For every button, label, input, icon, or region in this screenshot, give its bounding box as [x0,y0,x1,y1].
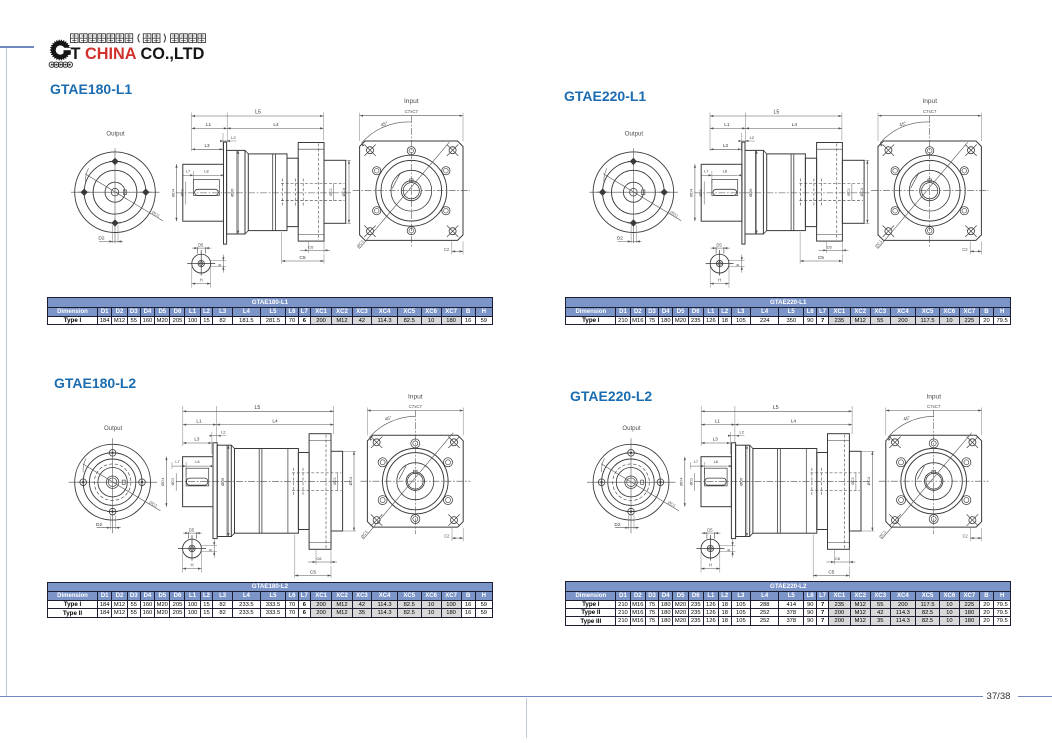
svg-text:B: B [726,549,731,552]
svg-text:C2: C2 [444,534,450,539]
svg-text:ØD3: ØD3 [171,478,175,485]
svg-text:D2: D2 [617,236,623,242]
svg-text:L6: L6 [714,460,718,464]
svg-text:C6: C6 [827,244,832,249]
svg-text:H: H [709,563,712,568]
svg-text:H: H [718,278,721,283]
svg-text:B: B [208,549,213,552]
svg-text:L7: L7 [704,170,708,174]
svg-text:C6: C6 [835,556,840,561]
svg-text:L2: L2 [750,135,755,140]
svg-text:Input: Input [922,98,937,105]
svg-text:L7: L7 [175,460,179,464]
svg-text:D5: D5 [198,242,204,247]
svg-text:L3: L3 [713,437,719,442]
svg-text:Input: Input [408,394,423,401]
svg-text:D2: D2 [614,522,620,528]
svg-text:C5: C5 [828,569,834,575]
svg-text:L4: L4 [273,122,279,128]
svg-text:L1: L1 [196,418,202,424]
svg-text:C5: C5 [310,569,316,575]
svg-text:C5: C5 [818,255,824,261]
svg-text:ØC4: ØC4 [859,187,864,196]
svg-text:ØD4: ØD4 [679,477,684,486]
svg-text:L8: L8 [723,170,727,174]
svg-text:ØD4: ØD4 [689,188,694,197]
svg-text:45°: 45° [380,121,388,128]
svg-text:H: H [190,563,193,568]
svg-text:L5: L5 [774,110,780,116]
svg-text:L3: L3 [204,143,210,148]
svg-text:L5: L5 [773,405,779,411]
svg-text:ØD6: ØD6 [230,188,235,197]
svg-text:L6: L6 [195,460,199,464]
svg-text:L2: L2 [221,430,226,435]
svg-text:ØC3: ØC3 [333,478,337,485]
svg-text:L4: L4 [791,418,797,424]
svg-text:ØC4: ØC4 [348,476,353,485]
svg-text:B: B [217,264,222,267]
svg-text:ØD1: ØD1 [148,500,159,509]
svg-text:ØD4: ØD4 [170,188,175,197]
svg-text:L4: L4 [792,122,798,128]
svg-text:D2: D2 [98,236,104,242]
svg-text:ØC4: ØC4 [866,476,871,485]
svg-text:ØD6: ØD6 [220,477,225,486]
svg-text:ØC4: ØC4 [341,187,346,196]
svg-text:H: H [200,278,203,283]
svg-text:C2: C2 [444,247,450,252]
svg-text:C2: C2 [962,534,968,539]
svg-text:Input: Input [404,98,419,105]
svg-text:ØC3: ØC3 [847,189,851,196]
svg-text:D5: D5 [716,242,722,247]
svg-text:Output: Output [106,131,125,138]
svg-text:L5: L5 [255,110,261,116]
svg-text:Output: Output [104,425,123,432]
svg-text:D2: D2 [96,522,102,528]
svg-text:L7: L7 [186,170,190,174]
svg-text:45°: 45° [903,415,911,422]
svg-text:D5: D5 [707,527,713,532]
svg-text:ØD4: ØD4 [160,477,165,486]
svg-text:ØD1: ØD1 [151,210,162,219]
svg-text:ØD6: ØD6 [748,188,753,197]
svg-text:L3: L3 [723,143,729,148]
svg-text:ØD1: ØD1 [667,500,678,509]
svg-text:B: B [735,264,740,267]
svg-text:L2: L2 [739,430,744,435]
svg-text:L1: L1 [206,122,212,128]
svg-text:ØD6: ØD6 [738,477,743,486]
svg-text:C7xC7: C7xC7 [923,109,937,114]
svg-text:L8: L8 [204,170,208,174]
svg-text:L4: L4 [272,418,278,424]
svg-text:45°: 45° [384,415,392,422]
svg-text:45°: 45° [899,121,907,128]
svg-text:L7: L7 [694,460,698,464]
svg-text:C7xC7: C7xC7 [927,404,941,409]
svg-text:C2: C2 [962,247,968,252]
svg-text:C7xC7: C7xC7 [409,404,423,409]
svg-text:Output: Output [625,131,644,138]
svg-text:ØC3: ØC3 [329,189,333,196]
svg-text:L5: L5 [255,405,261,411]
svg-text:C5: C5 [299,255,305,261]
svg-text:ØC3: ØC3 [851,478,855,485]
svg-text:Input: Input [926,394,941,401]
svg-text:L3: L3 [194,437,200,442]
svg-text:L2: L2 [231,135,236,140]
svg-text:C6: C6 [317,556,322,561]
svg-text:C7xC7: C7xC7 [405,109,419,114]
svg-text:ØD1: ØD1 [669,210,680,219]
svg-text:ØD3: ØD3 [689,478,693,485]
svg-text:D5: D5 [189,527,195,532]
svg-text:L1: L1 [724,122,730,128]
svg-text:C6: C6 [308,244,313,249]
svg-text:L1: L1 [715,418,721,424]
svg-text:Output: Output [622,425,641,432]
